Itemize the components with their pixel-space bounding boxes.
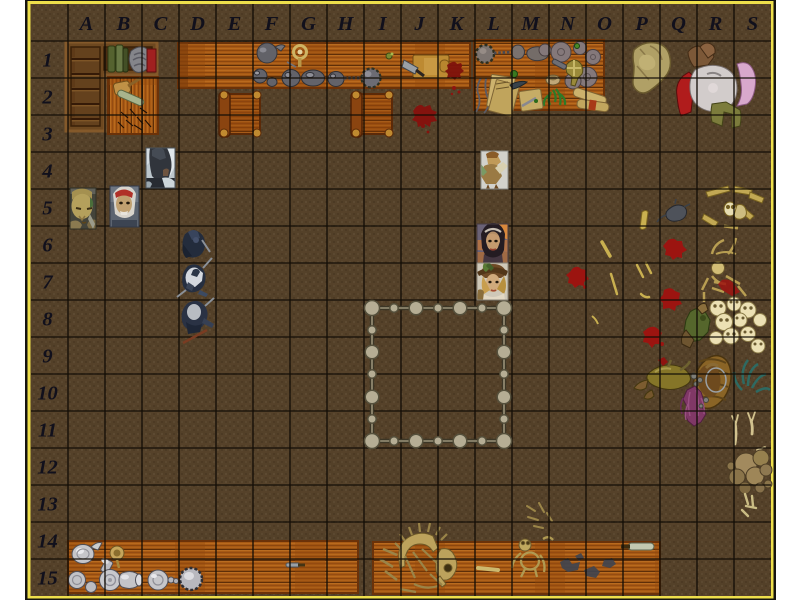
svg-text:5: 5 [42,198,52,220]
svg-text:D: D [189,13,205,35]
svg-text:6: 6 [42,235,53,257]
svg-text:A: A [78,13,94,35]
svg-text:O: O [597,13,612,35]
svg-text:I: I [378,13,388,35]
svg-text:H: H [337,13,355,35]
svg-text:1: 1 [42,50,52,72]
svg-text:E: E [227,13,242,35]
svg-text:13: 13 [37,494,58,516]
svg-text:10: 10 [37,383,58,405]
svg-text:8: 8 [42,309,52,331]
svg-text:Q: Q [671,13,686,35]
svg-text:S: S [747,13,758,35]
svg-text:11: 11 [38,420,57,442]
svg-text:4: 4 [41,161,52,183]
svg-text:F: F [264,13,279,35]
svg-text:7: 7 [42,272,53,294]
svg-text:L: L [486,13,500,35]
svg-text:R: R [708,13,723,35]
svg-text:2: 2 [41,87,52,109]
svg-text:M: M [520,13,540,35]
svg-text:K: K [449,13,465,35]
svg-text:9: 9 [42,346,52,368]
svg-text:12: 12 [37,457,58,479]
svg-text:C: C [154,13,168,35]
svg-text:14: 14 [37,531,58,553]
svg-text:P: P [634,13,648,35]
svg-text:N: N [559,13,576,35]
svg-text:3: 3 [41,124,52,146]
svg-text:B: B [116,13,131,35]
svg-text:J: J [413,13,425,35]
svg-text:G: G [301,13,316,35]
svg-text:15: 15 [37,568,58,590]
